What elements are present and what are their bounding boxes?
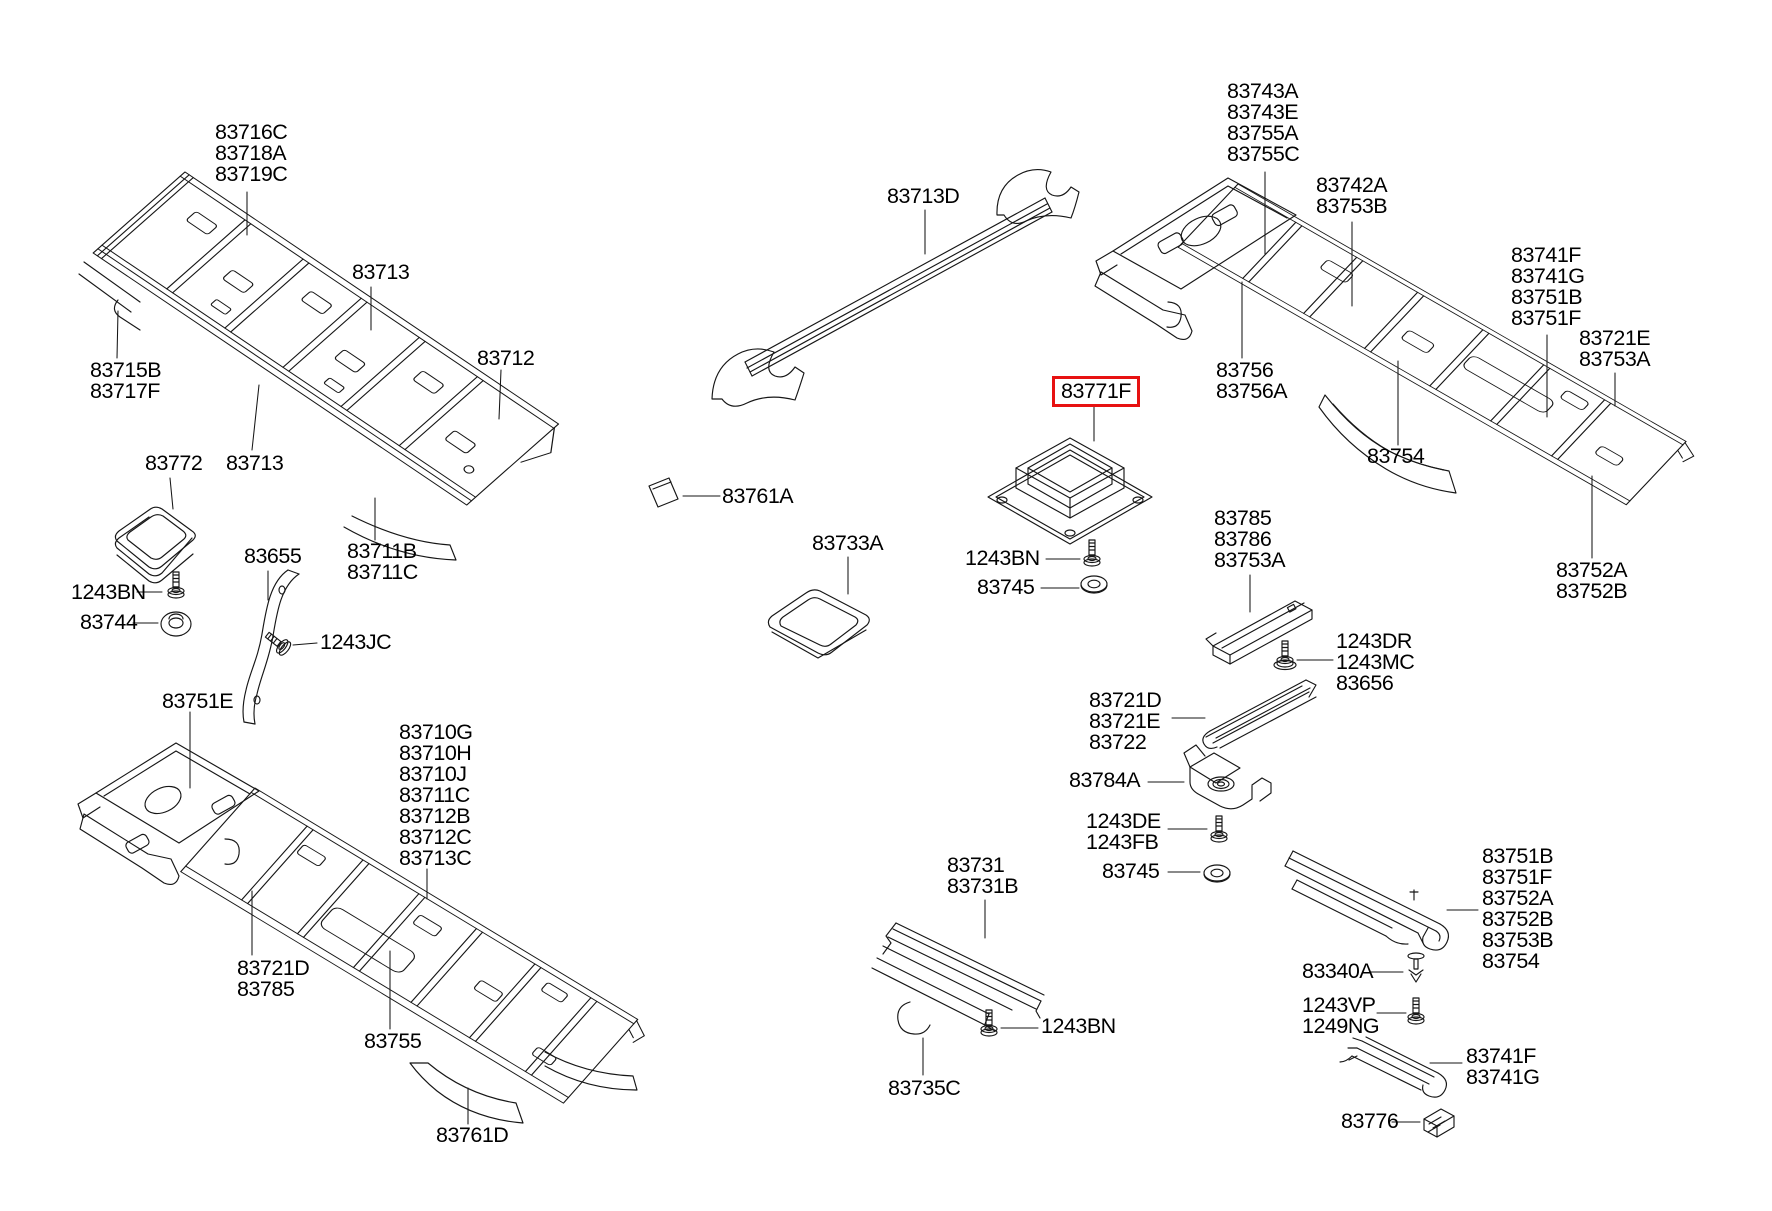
part-bellows-83772: [115, 507, 195, 583]
part-bracket-83655: [243, 570, 299, 724]
panel-bottom-left: [78, 743, 651, 1123]
part-clip-83340A: [1408, 953, 1424, 982]
part-label-83751E[interactable]: 83751E: [162, 691, 233, 712]
part-label-83340A[interactable]: 83340A: [1302, 961, 1373, 982]
sketch-panel-83731: [872, 923, 1044, 1034]
part-label-83752A-83752B[interactable]: 83752A 83752B: [1556, 560, 1627, 602]
part-label-1243VP-1249NG[interactable]: 1243VP 1249NG: [1302, 995, 1379, 1037]
screw-1243DE: [1211, 816, 1227, 842]
part-label-1243DR-1243MC-83656[interactable]: 1243DR 1243MC 83656: [1336, 631, 1414, 694]
part-label-83712[interactable]: 83712: [477, 348, 534, 369]
part-label-83713D[interactable]: 83713D: [887, 186, 959, 207]
part-label-83716C-83718A-83719C[interactable]: 83716C 83718A 83719C: [215, 122, 287, 185]
part-label-83735C[interactable]: 83735C: [888, 1078, 960, 1099]
grommet-83744: [161, 612, 191, 636]
part-label-83743A-group[interactable]: 83743A 83743E 83755A 83755C: [1227, 81, 1299, 165]
part-label-1243DE-1243FB[interactable]: 1243DE 1243FB: [1086, 811, 1161, 853]
part-weatherstrip-83741F: [1340, 1037, 1446, 1097]
part-sunroof-frame-83771F: [988, 438, 1152, 544]
part-label-83754-top[interactable]: 83754: [1367, 446, 1424, 467]
washer-83745-lower: [1204, 865, 1230, 882]
part-label-83744[interactable]: 83744: [80, 612, 137, 633]
screw-1243BN-left: [168, 572, 184, 598]
part-label-83710G-group[interactable]: 83710G 83710H 83710J 83711C 83712B 83712…: [399, 722, 473, 869]
screw-1243VP: [1408, 998, 1424, 1024]
part-label-83755[interactable]: 83755: [364, 1031, 421, 1052]
part-label-83741F-group-top[interactable]: 83741F 83741G 83751B 83751F: [1511, 245, 1585, 329]
part-label-83741F-83741G-bottom[interactable]: 83741F 83741G: [1466, 1046, 1540, 1088]
part-label-83745-center[interactable]: 83745: [977, 577, 1034, 598]
part-gasket-83733A: [768, 590, 869, 658]
part-label-83761A[interactable]: 83761A: [722, 486, 793, 507]
part-label-83761D[interactable]: 83761D: [436, 1125, 508, 1146]
part-label-83721E-83753A[interactable]: 83721E 83753A: [1579, 328, 1650, 370]
part-label-83711B-83711C[interactable]: 83711B 83711C: [347, 541, 418, 583]
part-label-83776[interactable]: 83776: [1341, 1111, 1398, 1132]
part-label-83713-upper[interactable]: 83713: [352, 262, 409, 283]
part-label-83715B-83717F[interactable]: 83715B 83717F: [90, 360, 161, 402]
part-clip-83776: [1424, 1109, 1454, 1137]
part-label-83751B-group-bottom[interactable]: 83751B 83751F 83752A 83752B 83753B 83754: [1482, 846, 1553, 972]
part-label-83772[interactable]: 83772: [145, 453, 202, 474]
part-rail-83785: [1206, 601, 1312, 664]
part-label-83771F[interactable]: 83771F: [1052, 376, 1140, 407]
part-label-1243BN-left[interactable]: 1243BN: [71, 582, 146, 603]
part-label-1243JC[interactable]: 1243JC: [320, 632, 391, 653]
washer-83745-center: [1081, 576, 1107, 593]
part-label-83756-83756A[interactable]: 83756 83756A: [1216, 360, 1287, 402]
screw-1243DR: [1277, 641, 1293, 667]
part-label-83655[interactable]: 83655: [244, 546, 301, 567]
part-label-83721D-83785[interactable]: 83721D 83785: [237, 958, 309, 1000]
part-label-1243BN-bottom[interactable]: 1243BN: [1041, 1016, 1116, 1037]
part-label-83721D-83721E-83722[interactable]: 83721D 83721E 83722: [1089, 690, 1161, 753]
part-label-83713-lower[interactable]: 83713: [226, 453, 283, 474]
part-label-83733A[interactable]: 83733A: [812, 533, 883, 554]
screw-1243JC: [262, 628, 292, 657]
parts-diagram-stage: 83716C 83718A 83719C8371383715B 83717F83…: [0, 0, 1772, 1211]
part-channel-83721D: [1203, 680, 1316, 748]
part-bracket-83784A: [1184, 745, 1271, 809]
part-label-83784A[interactable]: 83784A: [1069, 770, 1140, 791]
screw-1243BN-center: [1084, 540, 1100, 566]
part-clip-83761A: [649, 478, 678, 507]
part-rail-83751B-group: [1285, 851, 1448, 950]
part-label-83731-83731B[interactable]: 83731 83731B: [947, 855, 1018, 897]
part-label-83785-83786-83753A[interactable]: 83785 83786 83753A: [1214, 508, 1285, 571]
part-label-83745-lower[interactable]: 83745: [1102, 861, 1159, 882]
part-label-83742A-83753B[interactable]: 83742A 83753B: [1316, 175, 1387, 217]
part-label-1243BN-center[interactable]: 1243BN: [965, 548, 1040, 569]
